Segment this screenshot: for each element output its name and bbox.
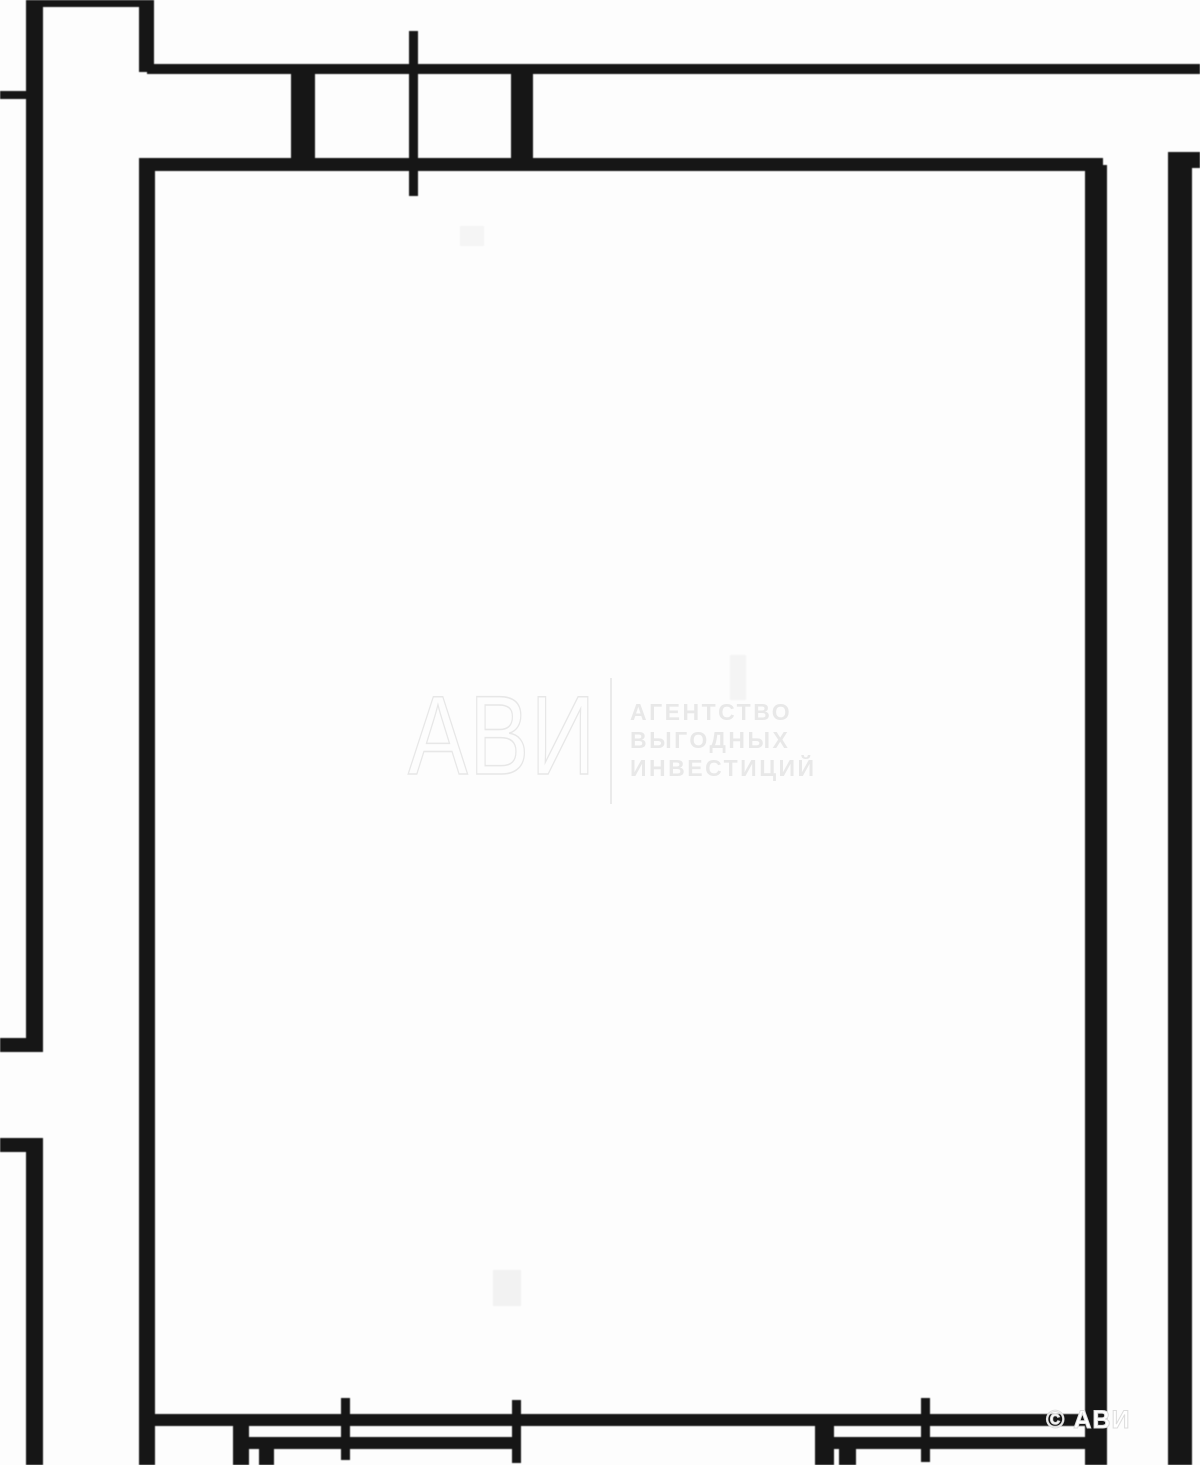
- bottom-door-jamb-3: [815, 1414, 834, 1465]
- bottom-door-jamb-1: [233, 1414, 249, 1465]
- top-wall-inner-line: [139, 158, 1103, 171]
- top-wall-pier-left: [291, 71, 315, 163]
- watermark-tagline-line-2: ВЫГОДНЫХ: [630, 729, 817, 751]
- bottom-wall-outer-line-right: [820, 1437, 1096, 1449]
- upper-left-stub-wall: [139, 0, 154, 72]
- watermark-logo: АВИ: [408, 680, 597, 792]
- artifact-smudge-1: [493, 1270, 521, 1306]
- outer-right-wall: [1168, 152, 1192, 1465]
- bottom-window-tick-3: [921, 1398, 930, 1462]
- watermark-tagline: АГЕНТСТВО ВЫГОДНЫХ ИНВЕСТИЦИЙ: [630, 701, 817, 779]
- bottom-wall-outer-line-left: [233, 1437, 518, 1449]
- room-left-wall: [139, 158, 155, 1465]
- outer-left-door-stub-bottom: [0, 1138, 43, 1152]
- room-right-wall: [1085, 165, 1107, 1465]
- watermark-copyright: © АВИ: [1046, 1406, 1130, 1435]
- outer-left-wall-upper: [26, 0, 43, 1044]
- bottom-wall-inner-line: [147, 1414, 1096, 1426]
- artifact-smudge-2: [460, 226, 484, 246]
- outer-left-wall-lower: [26, 1146, 43, 1465]
- bottom-door-jamb-4: [839, 1437, 856, 1465]
- bottom-window-tick-1: [341, 1398, 350, 1460]
- floor-plan: АВИ АГЕНТСТВО ВЫГОДНЫХ ИНВЕСТИЦИЙ © АВИ: [0, 0, 1200, 1465]
- walls-layer: [0, 0, 1200, 1465]
- artifact-smudge-3: [730, 655, 746, 700]
- outer-left-door-stub-top: [0, 1038, 43, 1052]
- watermark-tagline-line-1: АГЕНТСТВО: [630, 701, 817, 723]
- top-window-tick: [409, 31, 418, 196]
- top-edge-wall: [36, 0, 148, 7]
- watermark-divider: [610, 678, 612, 804]
- watermark-tagline-line-3: ИНВЕСТИЦИЙ: [630, 757, 817, 779]
- bottom-door-jamb-2: [259, 1437, 274, 1465]
- outer-right-top-stub: [1168, 152, 1200, 168]
- outer-left-tick: [0, 91, 27, 99]
- bottom-window-tick-2: [512, 1400, 521, 1463]
- top-wall-pier-right: [511, 69, 533, 163]
